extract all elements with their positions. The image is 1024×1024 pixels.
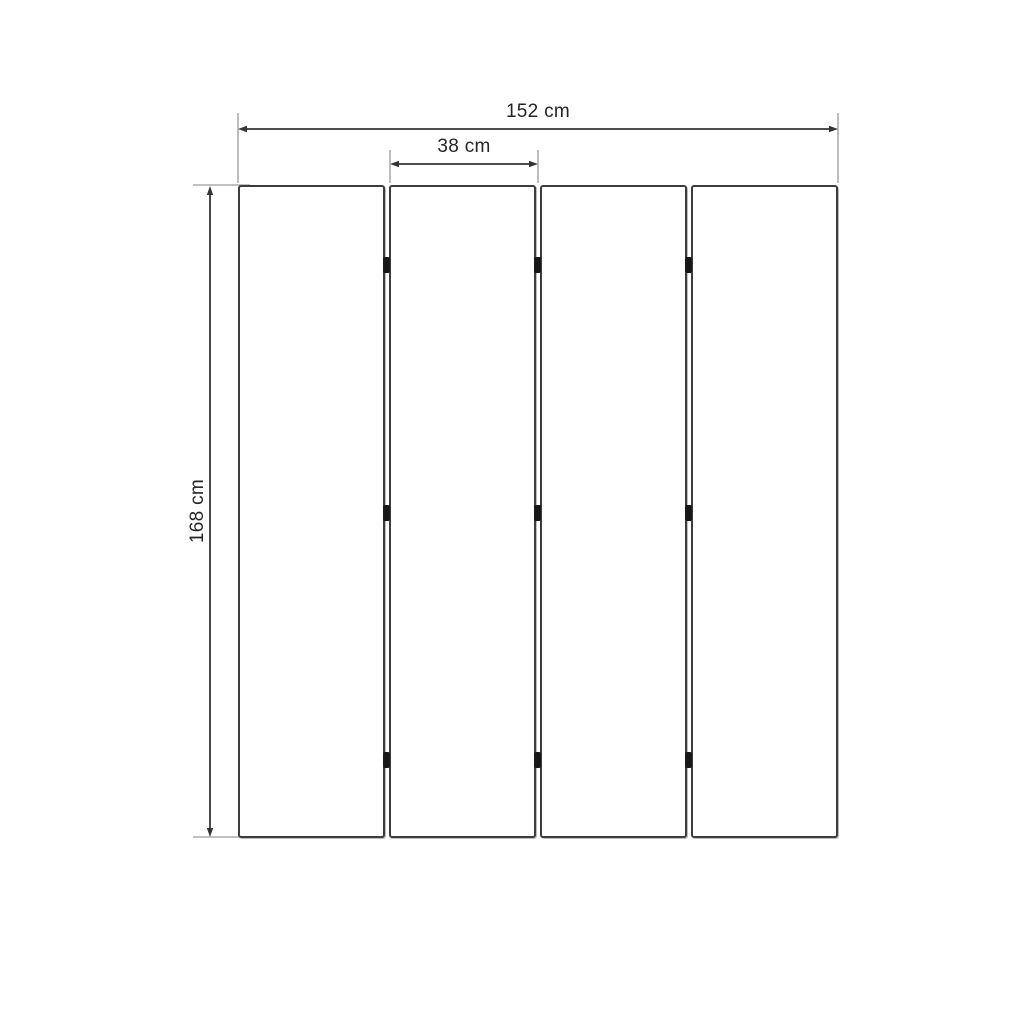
total-width-label: 152 cm — [458, 100, 618, 124]
hinge — [685, 505, 692, 521]
panel-1 — [238, 185, 385, 838]
hinge — [685, 752, 692, 768]
panel-2 — [389, 185, 536, 838]
panel-4 — [691, 185, 838, 838]
hinge — [383, 257, 390, 273]
arrowhead-right — [529, 161, 538, 167]
panel-3 — [540, 185, 687, 838]
height-label: 168 cm — [186, 431, 210, 591]
arrowhead-right — [829, 126, 838, 132]
hinge — [534, 752, 541, 768]
arrowhead-left — [390, 161, 399, 167]
arrowhead-bottom — [207, 828, 213, 837]
hinge — [383, 752, 390, 768]
diagram-canvas: 152 cm 38 cm 168 cm — [0, 0, 1024, 1024]
hinge — [534, 257, 541, 273]
hinge — [534, 505, 541, 521]
hinge — [383, 505, 390, 521]
panel-width-label: 38 cm — [384, 135, 544, 159]
arrowhead-top — [207, 186, 213, 195]
hinge — [685, 257, 692, 273]
arrowhead-left — [238, 126, 247, 132]
